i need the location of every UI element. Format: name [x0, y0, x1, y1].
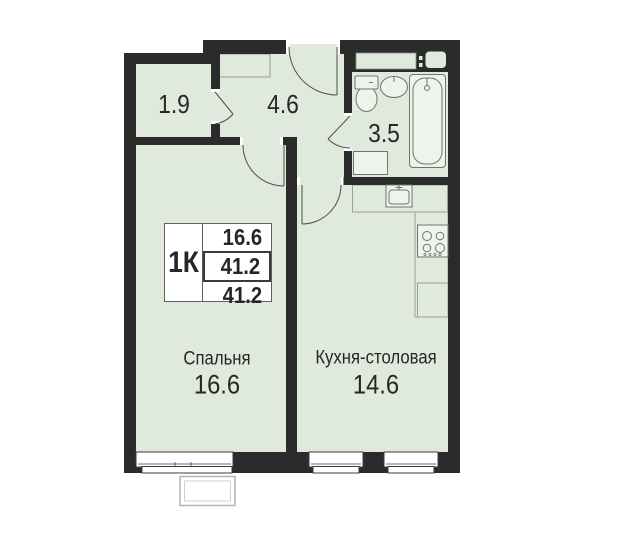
- legend-values-column: 16.6 41.2 41.2: [203, 224, 271, 301]
- toilet-icon: [355, 76, 378, 112]
- washing-machine-icon: [354, 152, 388, 175]
- kitchen-window-left: [309, 452, 363, 473]
- floorplan-page: 1.9 4.6 3.5 Спальня 16.6 Кухня-столовая …: [0, 0, 640, 549]
- apartment-legend: 1К 16.6 41.2 41.2: [164, 223, 272, 302]
- kitchen-area-label: 14.6: [350, 372, 403, 399]
- floorplan-svg: [0, 0, 640, 549]
- legend-total-area-boxed: 41.2: [203, 251, 271, 282]
- kitchen-window-right: [384, 452, 438, 473]
- vent-shaft-icon: [356, 52, 446, 70]
- bathtub-icon: [410, 75, 446, 168]
- sink-icon: [381, 77, 408, 98]
- hallway-area-label: 4.6: [265, 91, 301, 117]
- bedroom-name-label: Спальня: [179, 350, 255, 369]
- bathroom-area-label: 3.5: [366, 120, 402, 146]
- legend-total-area: 41.2: [203, 282, 271, 309]
- bedroom-area-label: 16.6: [191, 372, 244, 399]
- balcony-icon: [180, 477, 235, 506]
- kitchen-sink-icon: [386, 185, 412, 207]
- stove-icon: [418, 225, 449, 257]
- legend-living-area: 16.6: [203, 224, 271, 251]
- kitchen-name-label: Кухня-столовая: [307, 349, 445, 368]
- wardrobe-area-label: 1.9: [156, 91, 192, 117]
- bedroom-window: [136, 452, 233, 473]
- apartment-type-label: 1К: [165, 224, 203, 301]
